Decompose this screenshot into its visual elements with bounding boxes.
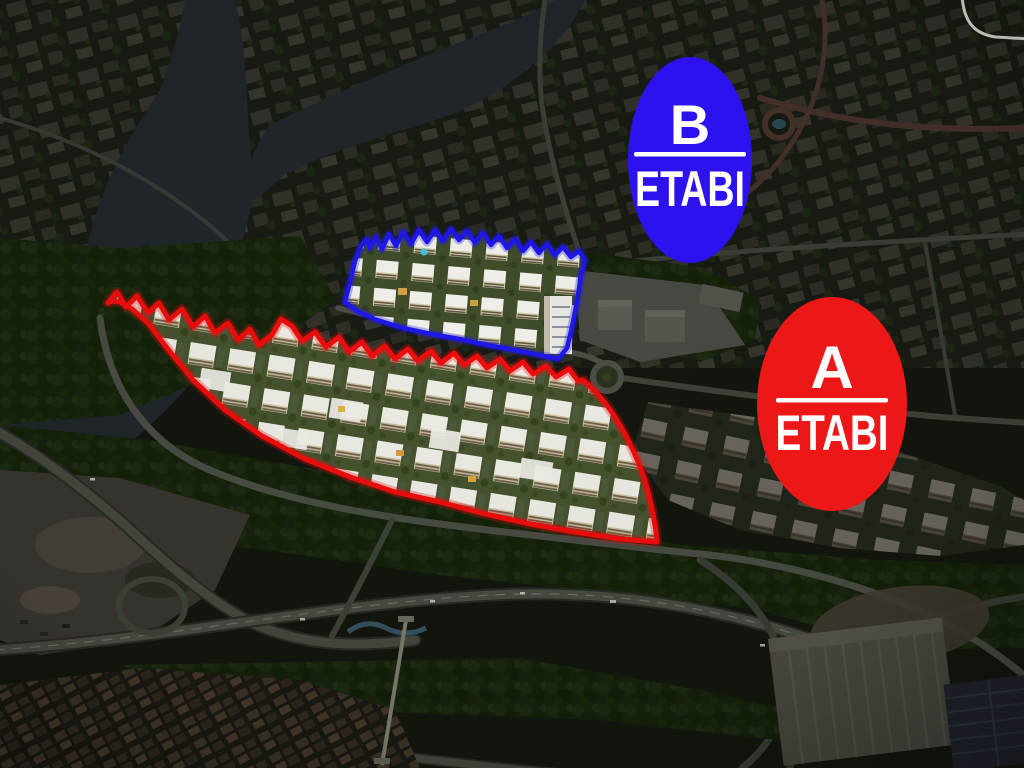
phase-b-letter: B xyxy=(670,93,710,156)
phase-a-name: ETABI xyxy=(776,405,889,461)
phase-a-badge[interactable]: A ETABI xyxy=(757,297,907,511)
phase-b-divider xyxy=(634,152,746,157)
phase-a-badge-ellipse[interactable] xyxy=(757,297,907,511)
phase-b-badge-ellipse[interactable] xyxy=(628,57,752,263)
phase-b-badge[interactable]: B ETABI xyxy=(628,57,752,263)
aerial-map: B ETABI A ETABI xyxy=(0,0,1024,768)
aerial-site-plan: B ETABI A ETABI xyxy=(0,0,1024,768)
phase-b-name: ETABI xyxy=(635,161,745,217)
phase-a-letter: A xyxy=(810,334,853,401)
phase-a-divider xyxy=(776,398,888,403)
